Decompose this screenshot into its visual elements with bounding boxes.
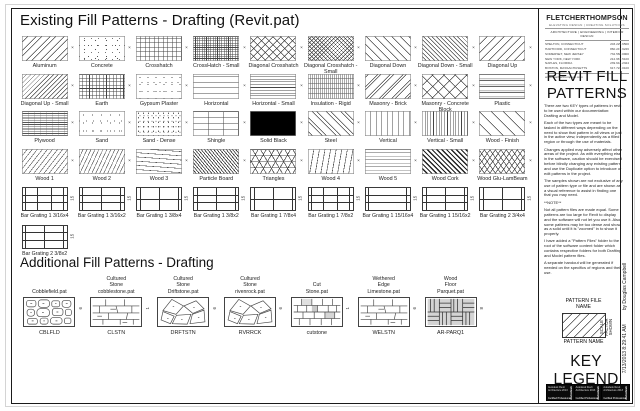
pattern-label: Masonry - Brick xyxy=(359,101,416,107)
pattern-swatch: × xyxy=(422,149,468,174)
bar-grating-swatch xyxy=(22,225,68,249)
bar-grating-sample: 15Bar Grating 1 7/8x4 xyxy=(245,187,302,225)
pattern-fill-diagup xyxy=(479,36,525,61)
scale-factor: × xyxy=(243,158,248,161)
bar-grating-swatch xyxy=(365,187,411,211)
pattern-label: Insulation - Rigid xyxy=(302,101,359,107)
pattern-label: Plywood xyxy=(16,138,73,144)
pattern-label: Crosshatch xyxy=(131,63,188,69)
scale-factor-label: SCALE FACTOR SHOWN xyxy=(599,313,613,343)
scale-factor: 15 xyxy=(242,196,247,201)
pattern-label: Wood 2 xyxy=(73,176,130,182)
bar-grating-sample: 15Bar Grating 1 3/8x4 xyxy=(130,187,187,225)
pattern-fill-sand-dense xyxy=(136,111,182,136)
pattern-fill-sand xyxy=(79,111,125,136)
pattern-fill-vert xyxy=(365,111,411,136)
scale-factor: × xyxy=(472,46,477,49)
badge-product: Autodesk Revit Architecture 2013 xyxy=(575,385,598,392)
pattern-fill-insul xyxy=(308,74,354,99)
pattern-fill-crosshatch-sm xyxy=(193,36,239,61)
pattern-label: RVRRCK xyxy=(239,330,262,336)
pattern-swatch: 6 xyxy=(23,297,75,327)
autodesk-logo: Autodesk xyxy=(568,386,572,400)
scale-factor: × xyxy=(472,83,477,86)
scale-factor: × xyxy=(71,46,76,49)
scale-factor: 6 xyxy=(79,307,84,310)
pattern-swatch: × xyxy=(365,111,411,136)
pattern-fill-cork xyxy=(422,149,468,174)
pattern-sample: ×Diagonal Down xyxy=(359,36,416,74)
scale-factor: × xyxy=(128,158,133,161)
pattern-sample: ×Earth xyxy=(73,74,130,112)
file-name-line: Limestone.pat xyxy=(367,289,400,296)
pattern-swatch: × xyxy=(479,74,525,99)
pattern-label: Sand - Dense xyxy=(131,138,188,144)
pattern-fill-diagdown xyxy=(365,36,411,61)
bar-grating-label: Bar Grating 1 3/8x2 xyxy=(188,214,245,220)
pattern-label: Gypsum Plaster xyxy=(131,101,188,107)
pattern-fill-particle xyxy=(193,149,239,174)
pattern-sample: ×CrossHatch - Small xyxy=(188,36,245,74)
pattern-label: AR-PARQ1 xyxy=(437,330,464,336)
scale-factor: × xyxy=(300,158,305,161)
pattern-fill-wood4 xyxy=(308,149,354,174)
pattern-label: Horizontal xyxy=(188,101,245,107)
pattern-swatch: × xyxy=(193,74,239,99)
pattern-swatch: × xyxy=(136,111,182,136)
pattern-label: Wood 4 xyxy=(302,176,359,182)
pattern-sample: ×Sand xyxy=(73,111,130,149)
pattern-sample: ×Triangles xyxy=(245,149,302,187)
pattern-label: CBLFLD xyxy=(39,330,60,336)
pattern-swatch: × xyxy=(308,74,354,99)
header-rule xyxy=(545,40,629,41)
autodesk-logo: Autodesk xyxy=(624,386,628,400)
pattern-swatch: × xyxy=(136,36,182,61)
pattern-sample: ×Horizontal xyxy=(188,74,245,112)
pattern-label: Shingle xyxy=(188,138,245,144)
scale-factor: 15 xyxy=(528,196,533,201)
scale-factor: × xyxy=(414,46,419,49)
bar-grating-swatch-wrap: 15 xyxy=(22,187,68,212)
bar-grating-swatch-wrap: 15 xyxy=(79,187,125,212)
scale-factor: × xyxy=(243,83,248,86)
pattern-fill-shingle xyxy=(193,111,239,136)
bar-grating-label: Bar Grating 1 3/8x4 xyxy=(131,214,188,220)
scale-factor: × xyxy=(71,121,76,124)
pattern-file-name: Cobblefield.pat xyxy=(32,273,67,295)
pattern-swatch: × xyxy=(479,149,525,174)
pattern-file-name: CulturedStoneDriftstone.pat xyxy=(168,273,199,295)
notes-text: There are two KEY types of patterns in r… xyxy=(544,104,623,278)
pattern-sample: ×Wood 3 xyxy=(130,149,187,187)
bar-grating-swatch-wrap: 15 xyxy=(365,187,411,212)
pattern-fill-aluminum xyxy=(22,36,68,61)
scale-factor: × xyxy=(357,121,362,124)
plot-stamp: 7/13/2013 8:29:41 AM by Douglas Campbell xyxy=(622,263,628,373)
pattern-sample: ×Particle Board xyxy=(188,149,245,187)
pattern-fill-ashlar xyxy=(291,297,343,327)
scale-factor: × xyxy=(529,46,534,49)
pattern-sample: ×Shingle xyxy=(188,111,245,149)
scale-factor: × xyxy=(300,121,305,124)
scale-factor: × xyxy=(300,83,305,86)
additional-pattern-sample: WoodFloorParquet.pat8AR-PARQ1 xyxy=(417,273,484,336)
autodesk-certification-badge: Autodesk Revit Architecture 2013Certifie… xyxy=(602,385,629,400)
scale-factor: 6 xyxy=(413,307,418,310)
pattern-swatch: × xyxy=(250,36,296,61)
scale-factor: × xyxy=(357,83,362,86)
pattern-fill-woodfin xyxy=(479,111,525,136)
pattern-fill-diagup-sm xyxy=(22,74,68,99)
pattern-fill-horiz xyxy=(193,74,239,99)
pattern-sample: ×Sand - Dense xyxy=(130,111,187,149)
bar-grating-label: Bar Grating 1 3/16x4 xyxy=(16,214,73,220)
pattern-label: Wood Glu-LamBeam xyxy=(474,176,531,182)
pattern-fill-triangles xyxy=(250,149,296,174)
pattern-file-name: WetheredEdgeLimestone.pat xyxy=(367,273,400,295)
pattern-sample: ×Diagonal Up xyxy=(474,36,531,74)
scale-factor: 15 xyxy=(413,196,418,201)
pattern-swatch: × xyxy=(79,74,125,99)
additional-pattern-sample: CulturedStoneDriftstone.pat6DRFTSTN xyxy=(150,273,217,336)
pattern-fill-earth xyxy=(79,74,125,99)
pattern-swatch: × xyxy=(250,111,296,136)
additional-patterns-title: Additional Fill Patterns - Drafting xyxy=(20,255,214,270)
pattern-swatch: × xyxy=(193,149,239,174)
pattern-fill-solid xyxy=(250,111,296,136)
pattern-sample: ×Plastic xyxy=(474,74,531,112)
pattern-swatch: × xyxy=(79,111,125,136)
scale-factor: × xyxy=(185,158,190,161)
notes-paragraph: **NOTE** xyxy=(544,201,623,206)
scale-factor: × xyxy=(414,121,419,124)
scale-factor: × xyxy=(128,83,133,86)
pattern-swatch: 1 xyxy=(90,297,142,327)
legend-sample-swatch: SCALE FACTOR SHOWN xyxy=(562,313,606,338)
additional-pattern-sample: WetheredEdgeLimestone.pat6WELSTN xyxy=(350,273,417,336)
autodesk-badge-bar: Autodesk Revit Architecture 2013Certifie… xyxy=(546,384,630,401)
pattern-sample: ×Wood Glu-LamBeam xyxy=(474,149,531,187)
pattern-sample: ×Gypsum Plaster xyxy=(130,74,187,112)
plot-author: by Douglas Campbell xyxy=(622,263,628,311)
pattern-sample: ×Wood 2 xyxy=(73,149,130,187)
pattern-fill-diagx-sm xyxy=(308,36,354,61)
drawing-sheet: Existing Fill Patterns - Drafting (Revit… xyxy=(0,0,640,411)
pattern-label: Steel xyxy=(302,138,359,144)
pattern-fill-horiz-sm xyxy=(250,74,296,99)
pattern-label: Diagonal Up xyxy=(474,63,531,69)
scale-factor: × xyxy=(357,158,362,161)
pattern-label: Diagonal Crosshatch xyxy=(245,63,302,69)
scale-factor: 15 xyxy=(70,196,75,201)
pattern-label: Sand xyxy=(73,138,130,144)
scale-factor: × xyxy=(414,158,419,161)
pattern-sample: ×Wood Cork xyxy=(417,149,474,187)
pattern-swatch: × xyxy=(136,74,182,99)
file-name-line: Cobblefield.pat xyxy=(32,289,67,296)
pattern-label: Earth xyxy=(73,101,130,107)
plot-date: 7/13/2013 8:29:41 AM xyxy=(622,324,628,373)
scale-factor: × xyxy=(128,46,133,49)
notes-paragraph: Not all pattern files are made equal. So… xyxy=(544,208,623,237)
pattern-label: Wood 3 xyxy=(131,176,188,182)
scale-factor: × xyxy=(243,121,248,124)
pattern-label: Wood Cork xyxy=(417,176,474,182)
scale-factor: × xyxy=(529,121,534,124)
bar-grating-swatch-wrap: 15 xyxy=(193,187,239,212)
company-services: ARCHITECTURE | ENGINEERING | INTERIOR DE… xyxy=(545,30,629,38)
scale-factor: × xyxy=(529,83,534,86)
bar-grating-swatch xyxy=(136,187,182,211)
pattern-swatch: × xyxy=(308,149,354,174)
bar-grating-swatch-wrap: 15 xyxy=(136,187,182,212)
notes-paragraph: The samples shown are not exclusive of a… xyxy=(544,179,623,198)
pattern-swatch: × xyxy=(79,149,125,174)
scale-factor: × xyxy=(357,46,362,49)
pattern-file-name-label: PATTERN FILE NAME xyxy=(562,299,606,311)
pattern-label: CrossHatch - Small xyxy=(188,63,245,69)
scale-factor: × xyxy=(128,121,133,124)
bar-grating-sample: 15Bar Grating 1 15/16x2 xyxy=(417,187,474,225)
pattern-label: Wood 1 xyxy=(16,176,73,182)
pattern-fill-slabs xyxy=(90,297,142,327)
pattern-sample: ×Solid Black xyxy=(245,111,302,149)
badge-product: Autodesk Revit Architecture 2013 xyxy=(547,385,570,392)
pattern-swatch: × xyxy=(365,74,411,99)
existing-patterns-title: Existing Fill Patterns - Drafting (Revit… xyxy=(20,12,300,29)
pattern-file-name: WoodFloorParquet.pat xyxy=(437,273,464,295)
pattern-swatch: × xyxy=(79,36,125,61)
company-logo: FLETCHERTHOMPSON xyxy=(545,13,629,22)
pattern-swatch: 6 xyxy=(358,297,410,327)
pattern-sample: ×Wood 1 xyxy=(16,149,73,187)
pattern-fill-wood2 xyxy=(79,149,125,174)
pattern-sample: ×Wood 5 xyxy=(359,149,416,187)
pattern-fill-parquet xyxy=(425,297,477,327)
pattern-label: Wood - Finish xyxy=(474,138,531,144)
pattern-sample: ×Horizontal - Small xyxy=(245,74,302,112)
bar-grating-label: Bar Grating 1 7/8x2 xyxy=(302,214,359,220)
pattern-sample: ×Masonry - Brick xyxy=(359,74,416,112)
notes-paragraph: A separate handout will be generated if … xyxy=(544,261,623,275)
pattern-file-name: CutStone.pat xyxy=(306,273,328,295)
file-name-line: cobblestone.pat xyxy=(98,289,135,296)
pattern-fill-wood1 xyxy=(22,149,68,174)
pattern-sample: ×Diagonal Crosshatch xyxy=(245,36,302,74)
pattern-label: Triangles xyxy=(245,176,302,182)
pattern-fill-plaster xyxy=(136,74,182,99)
bar-grating-swatch xyxy=(308,187,354,211)
bar-grating-sample: 15Bar Grating 1 15/16x4 xyxy=(359,187,416,225)
office-list: SHELTON, CONNECTICUT203.225.6500HARTFORD… xyxy=(545,42,629,71)
pattern-label: Wood 5 xyxy=(359,176,416,182)
bar-grating-sample: 15Bar Grating 1 7/8x2 xyxy=(302,187,359,225)
scale-factor: 1 xyxy=(346,307,351,310)
pattern-file-name: CulturedStonerivenrock.pat xyxy=(235,273,265,295)
pattern-swatch: × xyxy=(22,36,68,61)
pattern-swatch: × xyxy=(22,111,68,136)
notes-paragraph: Each of the two types are meant to be ta… xyxy=(544,121,623,145)
pattern-sample: ×Vertical xyxy=(359,111,416,149)
pattern-swatch: × xyxy=(365,149,411,174)
badge-certification: Certified Professional xyxy=(603,397,626,400)
bar-grating-swatch-wrap: 15 xyxy=(422,187,468,212)
file-name-line: rivenrock.pat xyxy=(235,289,265,296)
pattern-fill-polys xyxy=(224,297,276,327)
scale-factor: 15 xyxy=(127,196,132,201)
pattern-swatch: × xyxy=(22,74,68,99)
notes-paragraph: I have added a "Pattern Files" folder to… xyxy=(544,239,623,258)
pattern-fill-diagx xyxy=(250,36,296,61)
scale-factor: 6 xyxy=(213,307,218,310)
bar-grating-swatch xyxy=(422,187,468,211)
scale-factor: × xyxy=(414,83,419,86)
pattern-sample: ×Wood 4 xyxy=(302,149,359,187)
key-legend-sample: PATTERN FILE NAME SCALE FACTOR SHOWN PAT… xyxy=(544,299,623,346)
additional-pattern-sample: CulturedStonecobblestone.pat1CLSTN xyxy=(83,273,150,336)
bar-grating-sample: 15Bar Grating 1 3/8x2 xyxy=(188,187,245,225)
scale-factor: × xyxy=(472,121,477,124)
pattern-swatch: 8 xyxy=(425,297,477,327)
scale-factor: × xyxy=(71,158,76,161)
bar-grating-label: Bar Grating 1 15/16x2 xyxy=(417,214,474,220)
badge-product: Autodesk Revit Architecture 2013 xyxy=(602,385,625,392)
pattern-fill-vert-sm xyxy=(422,111,468,136)
pattern-label: cutstone xyxy=(307,330,327,336)
pattern-label: DRFTSTN xyxy=(171,330,196,336)
pattern-swatch: × xyxy=(250,74,296,99)
scale-factor: × xyxy=(243,46,248,49)
pattern-fill-polys xyxy=(157,297,209,327)
bar-grating-label: Bar Grating 1 15/16x4 xyxy=(359,214,416,220)
pattern-swatch: × xyxy=(250,149,296,174)
pattern-sample: ×Insulation - Rigid xyxy=(302,74,359,112)
pattern-swatch: × xyxy=(422,111,468,136)
scale-factor: × xyxy=(185,83,190,86)
pattern-fill-plastic xyxy=(479,74,525,99)
pattern-sample: ×Wood - Finish xyxy=(474,111,531,149)
document-title: REVIT FILL PATTERNS xyxy=(543,69,631,103)
header-rule xyxy=(545,28,629,29)
bar-grating-swatch xyxy=(250,187,296,211)
pattern-label: Plastic xyxy=(474,101,531,107)
scale-factor: 15 xyxy=(70,233,75,238)
scale-factor: × xyxy=(185,46,190,49)
notes-paragraph: Changes applied may adversely affect oth… xyxy=(544,148,623,177)
pattern-sample: ×Diagonal Down - Small xyxy=(417,36,474,74)
file-name-line: Parquet.pat xyxy=(437,289,464,296)
pattern-sample: ×Crosshatch xyxy=(130,36,187,74)
autodesk-certification-badge: Autodesk Revit Architecture 2013Certifie… xyxy=(547,385,574,400)
bar-grating-label: Bar Grating 2 3/4x4 xyxy=(474,214,531,220)
notes-paragraph: There are two KEY types of patterns in r… xyxy=(544,104,623,118)
badge-certification: Certified Professional xyxy=(548,397,571,400)
pattern-label: Particle Board xyxy=(188,176,245,182)
pattern-sample: ×Concrete xyxy=(73,36,130,74)
bar-grating-swatch-wrap: 15 xyxy=(22,225,68,250)
file-name-line: Driftstone.pat xyxy=(168,289,199,296)
pattern-fill-concrete xyxy=(79,36,125,61)
pattern-sample: ×Plywood xyxy=(16,111,73,149)
pattern-swatch: × xyxy=(308,36,354,61)
pattern-swatch: 1 xyxy=(291,297,343,327)
pattern-sample: ×Diagonal Crosshatch - Small xyxy=(302,36,359,74)
pattern-fill-steel xyxy=(308,111,354,136)
pattern-swatch: × xyxy=(22,149,68,174)
pattern-swatch: × xyxy=(422,36,468,61)
pattern-label: CLSTN xyxy=(107,330,125,336)
pattern-file-name: CulturedStonecobblestone.pat xyxy=(98,273,135,295)
scale-factor: 15 xyxy=(184,196,189,201)
scale-factor: 8 xyxy=(480,307,485,310)
pattern-sample: ×Masonry - Concrete Block xyxy=(417,74,474,112)
scale-factor: × xyxy=(472,158,477,161)
bar-grating-label: Bar Grating 1 3/16x2 xyxy=(73,214,130,220)
scale-factor: × xyxy=(529,158,534,161)
file-name-line: Stone.pat xyxy=(306,289,328,296)
pattern-swatch: × xyxy=(193,111,239,136)
bar-grating-label: Bar Grating 1 7/8x4 xyxy=(245,214,302,220)
pattern-swatch: × xyxy=(479,36,525,61)
pattern-fill-wood3 xyxy=(136,149,182,174)
bar-gratings-grid: 15Bar Grating 1 3/16x415Bar Grating 1 3/… xyxy=(16,187,531,262)
bar-grating-swatch xyxy=(479,187,525,211)
pattern-label: WELSTN xyxy=(372,330,394,336)
autodesk-logo: Autodesk xyxy=(596,386,600,400)
bar-grating-swatch-wrap: 15 xyxy=(308,187,354,212)
pattern-label: Solid Black xyxy=(245,138,302,144)
additional-pattern-sample: CulturedStonerivenrock.pat6RVRRCK xyxy=(217,273,284,336)
bar-grating-swatch-wrap: 15 xyxy=(250,187,296,212)
bar-grating-swatch-wrap: 15 xyxy=(479,187,525,212)
pattern-label: Vertical xyxy=(359,138,416,144)
pattern-swatch: × xyxy=(422,74,468,99)
scale-factor: × xyxy=(300,46,305,49)
pattern-label: Horizontal - Small xyxy=(245,101,302,107)
pattern-fill-wood5 xyxy=(365,149,411,174)
bar-grating-sample: 15Bar Grating 1 3/16x4 xyxy=(16,187,73,225)
pattern-label: Aluminum xyxy=(16,63,73,69)
pattern-sample: ×Aluminum xyxy=(16,36,73,74)
main-sidebar-divider xyxy=(538,8,539,403)
pattern-label: Diagonal Down - Small xyxy=(417,63,474,69)
pattern-label: Concrete xyxy=(73,63,130,69)
bar-grating-swatch xyxy=(22,187,68,211)
pattern-label: Diagonal Up - Small xyxy=(16,101,73,107)
bar-grating-sample: 15Bar Grating 1 3/16x2 xyxy=(73,187,130,225)
scale-factor: 1 xyxy=(146,307,151,310)
additional-pattern-sample: Cobblefield.pat6CBLFLD xyxy=(16,273,83,336)
pattern-sample: ×Steel xyxy=(302,111,359,149)
additional-patterns-grid: Cobblefield.pat6CBLFLDCulturedStonecobbl… xyxy=(16,273,484,336)
scale-factor: 15 xyxy=(299,196,304,201)
pattern-fill-brick xyxy=(365,74,411,99)
bar-grating-swatch xyxy=(193,187,239,211)
pattern-fill-rubble xyxy=(23,297,75,327)
scale-factor: 15 xyxy=(356,196,361,201)
scale-factor: 6 xyxy=(279,307,284,310)
pattern-label: Vertical - Small xyxy=(417,138,474,144)
pattern-swatch: × xyxy=(479,111,525,136)
autodesk-certification-badge: Autodesk Revit Architecture 2013Certifie… xyxy=(575,385,602,400)
pattern-swatch: 6 xyxy=(224,297,276,327)
company-tagline: ELEVATING DESIGN | CREATING SOLUTIONS xyxy=(545,23,629,27)
existing-patterns-grid: ×Aluminum×Concrete×Crosshatch×CrossHatch… xyxy=(16,36,531,186)
pattern-fill-crosshatch xyxy=(136,36,182,61)
scale-factor: × xyxy=(185,121,190,124)
scale-factor: 15 xyxy=(470,196,475,201)
